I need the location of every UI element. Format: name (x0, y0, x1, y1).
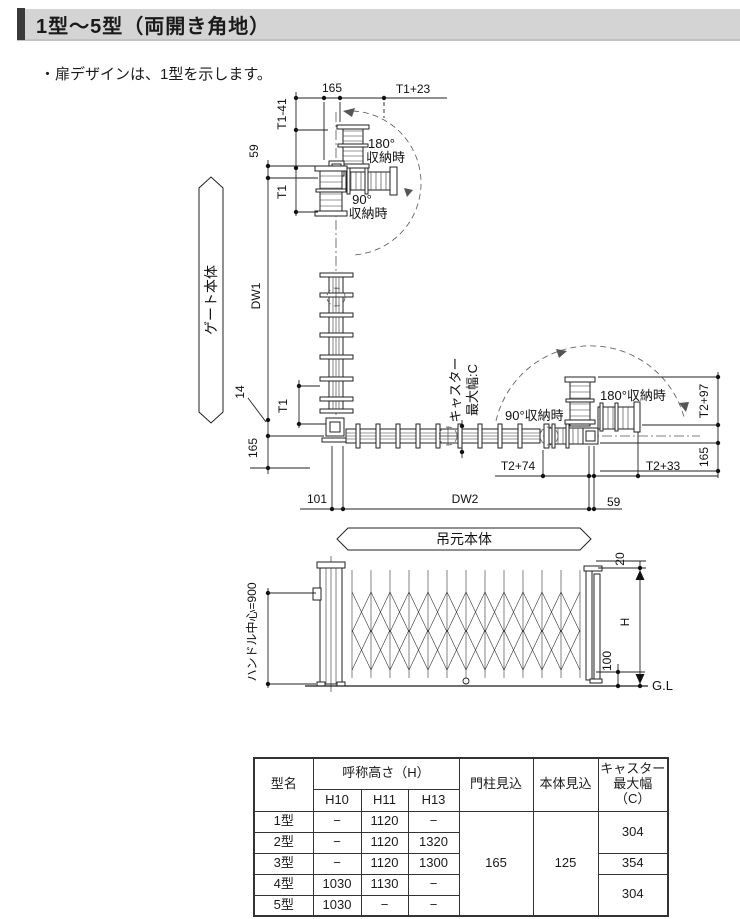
dim-20: 20 (613, 552, 627, 566)
table-row: 1型 − 1120 − 165 125 304 (254, 811, 668, 832)
cell-h10: − (313, 853, 361, 874)
cell-h13: 1300 (408, 853, 459, 874)
subheader-h13: H13 (408, 789, 459, 811)
dim-t1-upper: T1 (275, 185, 289, 199)
cell-h11: − (361, 895, 408, 916)
caster-icon (463, 678, 469, 684)
spec-table: 型名 呼称高さ（H） 門柱見込 本体見込 キャスター 最大幅 （C） H10 H… (253, 757, 669, 917)
caster-width-label-line1: キャスター (448, 357, 463, 422)
cell-body-depth: 125 (533, 811, 598, 916)
vertical-gate-leaf (320, 273, 353, 413)
cell-caster-width: 354 (598, 853, 668, 874)
accordion-lattice (352, 570, 580, 684)
hinge-body-banner-label: 吊元本体 (436, 531, 492, 547)
stow-180-upper-l2: 収納時 (366, 150, 405, 165)
cell-h10: − (313, 832, 361, 853)
dim-14: 14 (233, 385, 247, 399)
dim-101: 101 (307, 492, 327, 506)
cell-h11: 1120 (361, 811, 408, 832)
cell-model: 2型 (254, 832, 313, 853)
horizontal-gate-leaf (346, 424, 540, 448)
col-header-caster: キャスター 最大幅 （C） (598, 758, 668, 811)
subheader-h10: H10 (313, 789, 361, 811)
dim-165-right: 165 (697, 447, 711, 467)
dim-t1minus41: T1-41 (275, 98, 289, 130)
dim-h: H (618, 618, 632, 627)
dim-dw1: DW1 (249, 282, 263, 309)
stow-180-upper-l1: 180° (368, 136, 395, 151)
cell-pillar-depth: 165 (459, 811, 533, 916)
section-header: 1型～5型（両開き角地） (17, 9, 740, 41)
col-header-pillar: 門柱見込 (459, 758, 533, 811)
installation-diagram: 165 T1+23 T1-41 T1 59 DW1 14 T1 (0, 75, 740, 715)
cell-h11: 1120 (361, 853, 408, 874)
dim-100: 100 (600, 651, 614, 671)
cell-caster-width: 304 (598, 811, 668, 853)
cell-h13: 1320 (408, 832, 459, 853)
handle-icon (313, 588, 321, 600)
cell-h13: − (408, 874, 459, 895)
cell-model: 1型 (254, 811, 313, 832)
catalog-page: { "header": { "title": "1型～5型（両開き角地）" },… (0, 0, 740, 919)
cell-model: 3型 (254, 853, 313, 874)
dim-t1-lower: T1 (276, 399, 290, 413)
stow-90-upper-l2: 収納時 (348, 206, 387, 221)
cell-h11: 1120 (361, 832, 408, 853)
cell-h13: − (408, 811, 459, 832)
stow-90-upper-l1: 90° (352, 192, 372, 207)
col-header-body: 本体見込 (533, 758, 598, 811)
gate-body-banner: ゲート本体 (199, 177, 223, 423)
col-header-height: 呼称高さ（H） (313, 758, 459, 789)
cell-model: 5型 (254, 895, 313, 916)
dim-t2plus74: T2+74 (501, 459, 536, 473)
plan-dimensions: 165 T1+23 T1-41 T1 59 DW1 14 T1 (233, 81, 720, 511)
cell-h10: − (313, 811, 361, 832)
hinge-body-banner: 吊元本体 (337, 528, 591, 550)
stow-180-lower: 180°収納時 (600, 388, 666, 403)
dim-dw2: DW2 (452, 492, 479, 506)
stow-90-lower: 90°収納時 (505, 408, 564, 423)
cell-h13: − (408, 895, 459, 916)
cell-model: 4型 (254, 874, 313, 895)
caster-header-l1: キャスター (600, 761, 665, 776)
cell-h10: 1030 (313, 874, 361, 895)
corner-post (322, 418, 348, 442)
cell-caster-width: 304 (598, 874, 668, 916)
dim-handle-center: ハンドル中心=900 (244, 582, 259, 681)
col-header-model: 型名 (254, 758, 313, 811)
caster-header-l2: 最大幅 (613, 776, 652, 791)
dim-59-bottom: 59 (607, 495, 621, 509)
handle-post (313, 556, 345, 692)
cell-h11: 1130 (361, 874, 408, 895)
dim-t2plus33: T2+33 (646, 459, 681, 473)
dim-165-left: 165 (246, 438, 260, 458)
gate-body-banner-label: ゲート本体 (203, 265, 219, 335)
ground-line-label: G.L (652, 678, 673, 693)
dim-165-top: 165 (322, 81, 342, 95)
caster-header-l3: （C） (615, 791, 650, 806)
caster-width-label-line2: 最大幅:C (465, 364, 480, 416)
dim-t2plus97: T2+97 (697, 383, 711, 418)
header-accent-bar (17, 8, 25, 40)
plan-view: 165 T1+23 T1-41 T1 59 DW1 14 T1 (199, 81, 720, 550)
cell-h10: 1030 (313, 895, 361, 916)
subheader-h11: H11 (361, 789, 408, 811)
dim-59-left: 59 (247, 144, 261, 158)
page-title: 1型～5型（両開き角地） (36, 10, 270, 39)
elevation-view: G.L ハンドル中心=900 20 H 100 (244, 552, 673, 693)
dim-t1plus23: T1+23 (396, 82, 431, 96)
